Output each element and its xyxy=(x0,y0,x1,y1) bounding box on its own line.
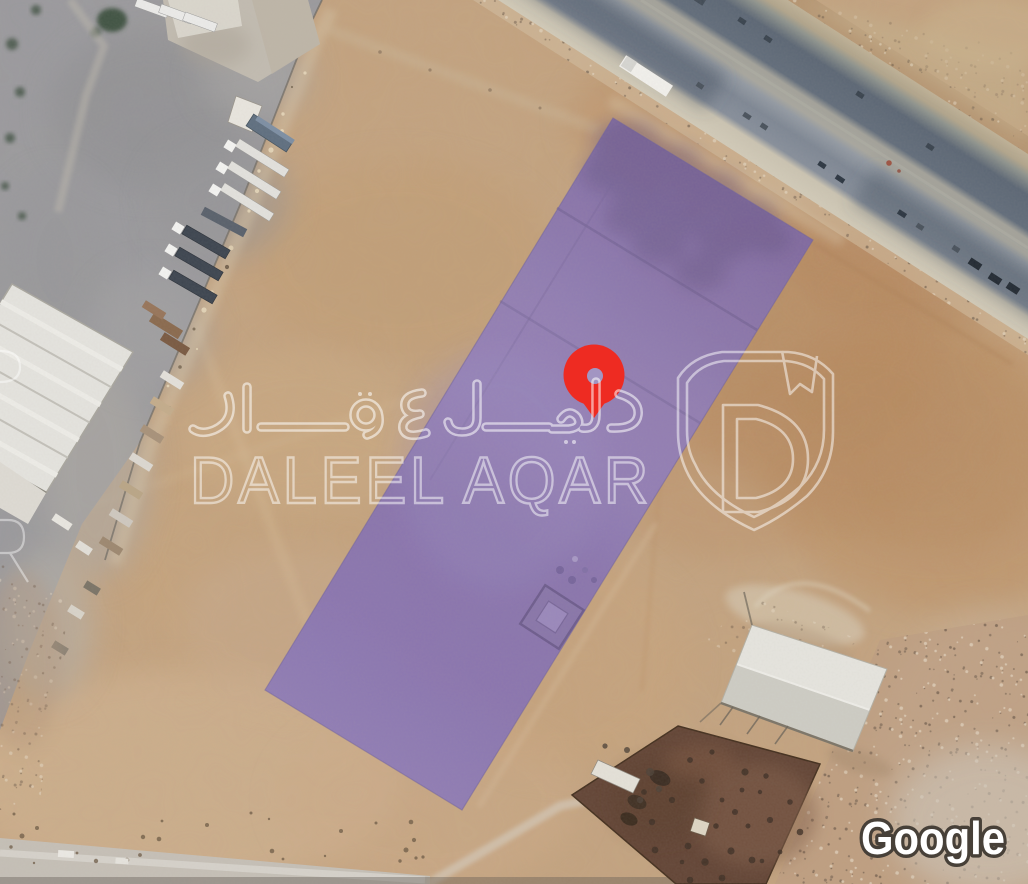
svg-text:Google: Google xyxy=(861,812,1005,864)
svg-text:DALEEL AQAR: DALEEL AQAR xyxy=(190,443,652,517)
